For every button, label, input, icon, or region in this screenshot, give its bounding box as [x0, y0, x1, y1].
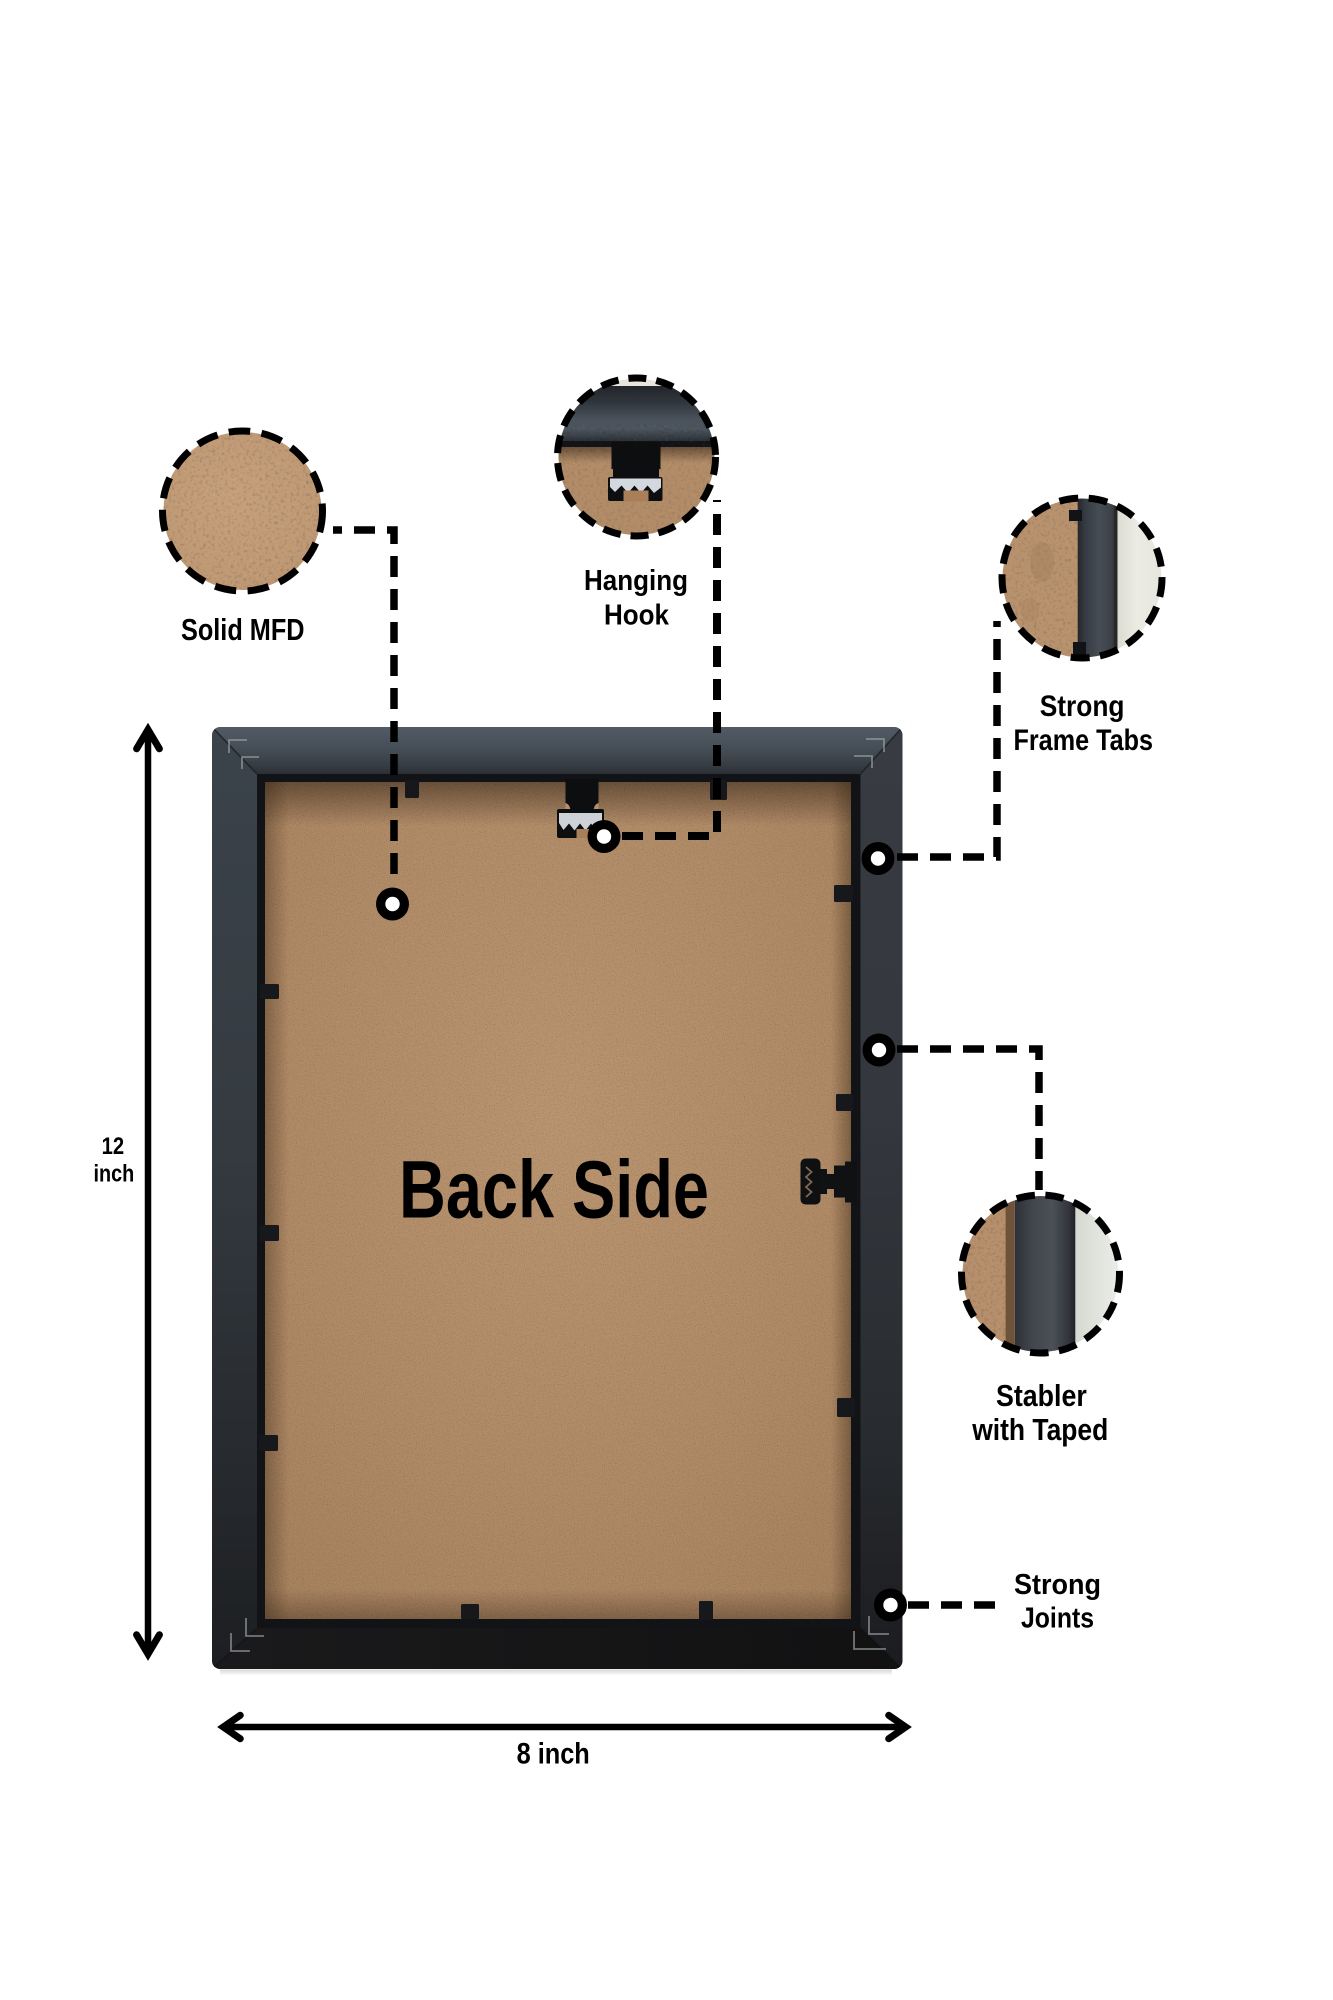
svg-text:Joints: Joints — [1021, 1603, 1094, 1635]
svg-text:Frame Tabs: Frame Tabs — [1014, 724, 1154, 757]
svg-text:Stabler: Stabler — [996, 1378, 1087, 1413]
svg-text:Solid MFD: Solid MFD — [181, 612, 305, 647]
svg-text:Strong: Strong — [1014, 1569, 1101, 1601]
svg-text:Hook: Hook — [604, 599, 670, 631]
svg-text:with Taped: with Taped — [971, 1412, 1108, 1447]
svg-text:Strong: Strong — [1040, 690, 1125, 723]
svg-text:Back Side: Back Side — [399, 1145, 709, 1236]
svg-text:8 inch: 8 inch — [517, 1738, 590, 1771]
svg-text:inch: inch — [94, 1160, 135, 1187]
svg-text:Hanging: Hanging — [584, 565, 688, 597]
svg-text:12: 12 — [102, 1133, 125, 1160]
